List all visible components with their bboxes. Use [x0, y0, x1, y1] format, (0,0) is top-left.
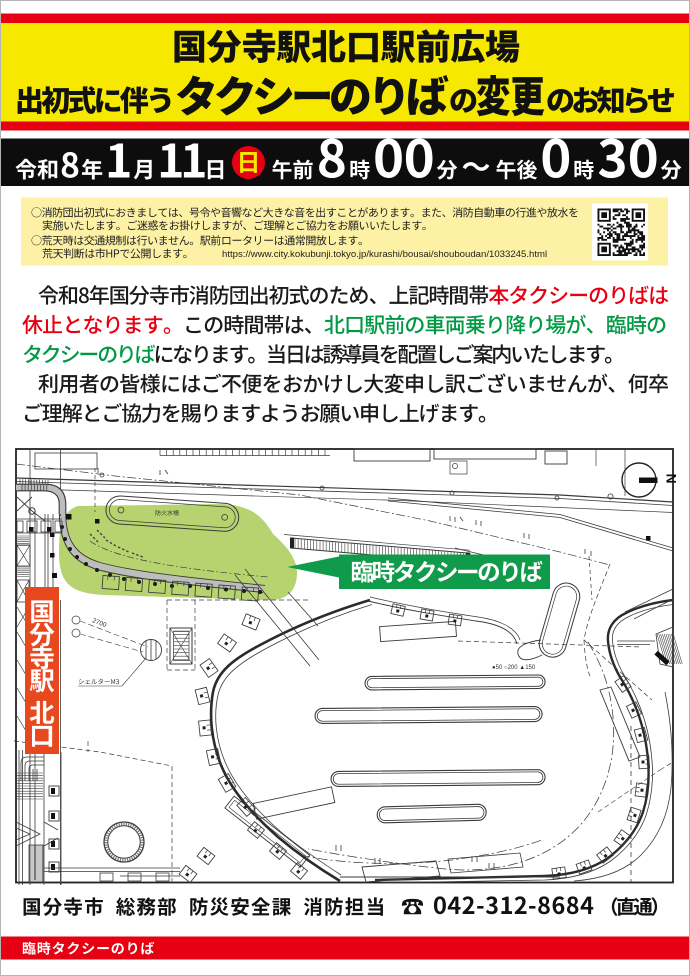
svg-text:N: N [664, 474, 680, 484]
svg-text:●50 ○200 ▲150: ●50 ○200 ▲150 [492, 665, 536, 671]
svg-text:https://www.city.kokubunji.tok: https://www.city.kokubunji.tokyo.jp/kura… [222, 249, 547, 260]
